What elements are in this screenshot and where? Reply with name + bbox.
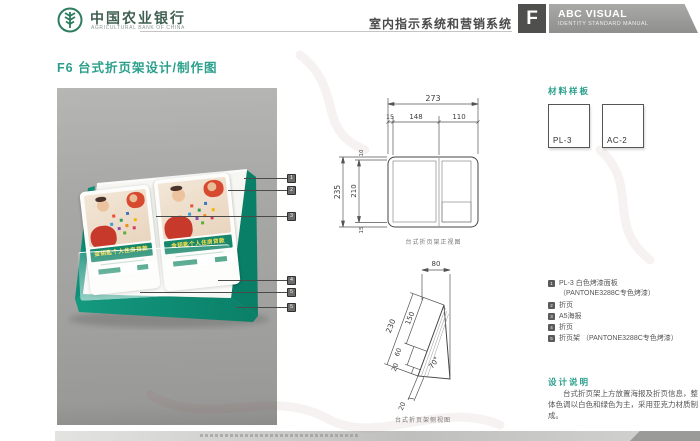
- side-view-caption: 台式折页架侧视图: [368, 415, 478, 424]
- legend-num: 4: [548, 324, 555, 331]
- front-view-caption: 台式折页架正视图: [376, 237, 491, 246]
- dim-slant-lower: 20: [390, 362, 401, 373]
- material-sample-ac2: AC-2: [602, 104, 644, 148]
- manual-title: ABC VISUAL: [558, 8, 698, 20]
- footer-tab: [630, 431, 700, 441]
- dim-total-height: 235: [333, 185, 342, 200]
- callout-marker: 4: [287, 276, 296, 285]
- materials-label: 材料样板: [548, 85, 590, 97]
- front-view-drawing: 273 15 148 110 235 210 10 15: [333, 88, 533, 258]
- legend-item: 3A5海报: [548, 311, 582, 321]
- callout-marker: 2: [287, 186, 296, 195]
- manual-banner: ABC VISUAL IDENTITY STANDARD MANUAL: [549, 4, 698, 33]
- dim-inner-height: 210: [350, 184, 358, 197]
- dim-bottom: 15: [359, 226, 365, 233]
- side-view-drawing: 80 230 150 60 20 20 70°: [358, 248, 538, 416]
- dim-top-width: 80: [432, 260, 441, 268]
- callout-line: [236, 307, 287, 308]
- legend-text: A5海报: [559, 313, 582, 320]
- dim-left: 15: [386, 113, 394, 121]
- callout-line: [228, 190, 287, 191]
- section-letter-block: F: [518, 4, 546, 33]
- section-title: 室内指示系统和营销系统: [340, 15, 512, 32]
- callout-line: [140, 292, 287, 293]
- dim-right: 110: [452, 113, 465, 121]
- callout-marker: 3: [287, 212, 296, 221]
- brochure-photo-art: [84, 189, 151, 248]
- callout-line: [156, 216, 287, 217]
- material-sample-pl3: PL-3: [548, 104, 590, 148]
- callout-marker: 5: [287, 288, 296, 297]
- manual-subtitle: IDENTITY STANDARD MANUAL: [558, 21, 698, 27]
- dim-total-width: 273: [425, 94, 440, 103]
- dim-base: 20: [397, 401, 408, 412]
- legend-num: 2: [548, 302, 555, 309]
- legend-text: PL-3 白色烤漆面板: [559, 280, 618, 287]
- callout-line: [244, 178, 287, 179]
- legend-num: 1: [548, 280, 555, 287]
- front-view-outline: [388, 157, 478, 227]
- legend-item: 4折页: [548, 322, 573, 332]
- legend-item: 2折页: [548, 300, 573, 310]
- notes-text: 台式折页架上方放置海报及折页信息，整体色调以白色和绿色为主，采用亚克力材质制成。: [548, 388, 698, 421]
- dim-slant-mid: 60: [393, 347, 404, 358]
- callout-line: [218, 280, 287, 281]
- product-photo: 金钥匙个人住房贷款 金钥匙个人住房贷款: [57, 88, 277, 425]
- legend-item-sub: （PANTONE3288C专色烤漆）: [559, 288, 655, 298]
- legend-item: 5折页架 （PANTONE3288C专色烤漆）: [548, 333, 678, 343]
- footer-bar: [55, 431, 700, 441]
- legend-text: 折页: [559, 324, 573, 331]
- brochure-photo-art: [158, 177, 231, 240]
- legend-item: 1PL-3 白色烤漆面板: [548, 278, 618, 288]
- callout-marker: 1: [287, 174, 296, 183]
- legend-num: 3: [548, 313, 555, 320]
- callout-marker: 5: [287, 303, 296, 312]
- material-code: AC-2: [607, 136, 627, 145]
- legend-text: 折页架 （PANTONE3288C专色烤漆）: [559, 335, 678, 342]
- abc-bank-logo-icon: [56, 6, 84, 34]
- dim-panel: 148: [409, 113, 422, 121]
- footer-fineprint: [200, 434, 360, 437]
- legend-text: 折页: [559, 302, 573, 309]
- notes-label: 设计说明: [548, 376, 590, 388]
- dim-slant-total: 230: [384, 318, 398, 335]
- dim-top: 10: [359, 149, 365, 156]
- page-title: F6 台式折页架设计/制作图: [57, 57, 218, 76]
- material-code: PL-3: [553, 136, 572, 145]
- manual-page: 中国农业银行 AGRICULTURAL BANK OF CHINA 室内指示系统…: [0, 0, 700, 441]
- legend-num: 5: [548, 335, 555, 342]
